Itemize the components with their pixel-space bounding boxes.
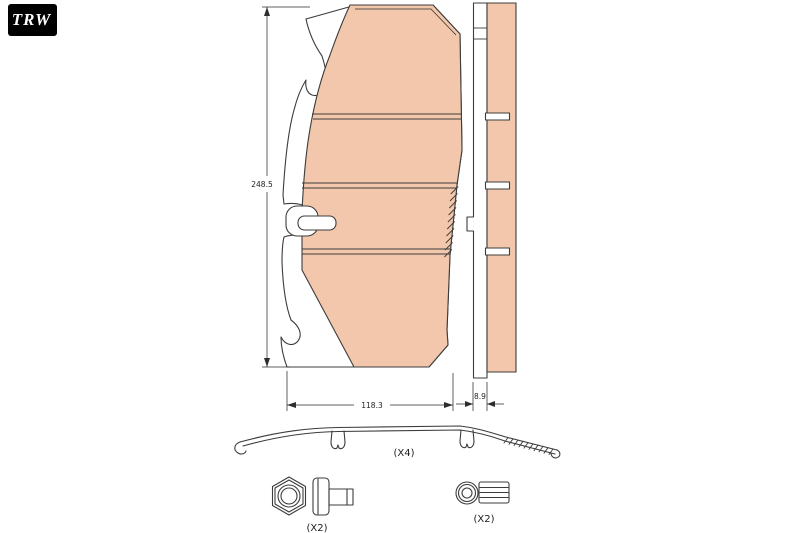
side-view-backplate [467,3,487,378]
width-dimension-value: 118.3 [361,401,383,410]
technical-drawing: 248.5 118.3 8.9 [0,0,800,533]
bolt [313,478,353,515]
catalog-drawing-page: TRW [0,0,800,533]
washer-ring [456,482,478,504]
height-dimension-value: 248.5 [251,180,273,189]
thickness-dimension-value: 8.9 [474,392,486,401]
front-view-slot [298,216,336,230]
hex-nut [273,477,306,515]
spring-clip-qty-label: (X4) [393,448,414,459]
thickness-dimension: 8.9 [456,382,504,411]
sleeve-set-qty-label: (X2) [473,514,494,525]
width-dimension: 118.3 [287,371,453,411]
bolt-set-qty-label: (X2) [306,523,327,533]
coiled-sleeve [479,482,509,503]
